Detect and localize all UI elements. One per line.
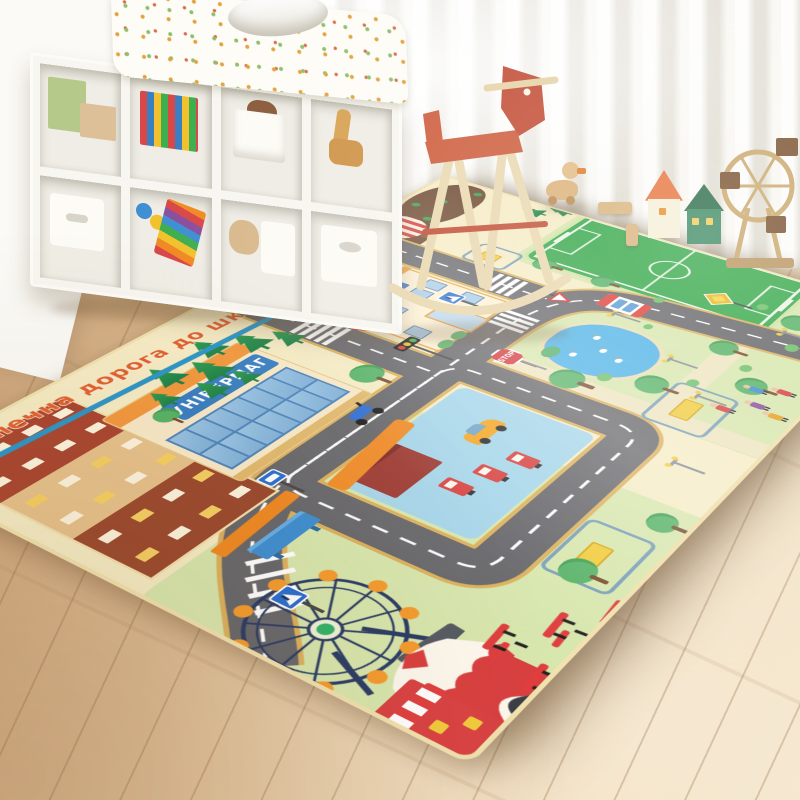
apartment-window: [84, 422, 107, 434]
wooden-giraffe-body: [329, 137, 363, 167]
xylophone: [154, 198, 207, 267]
apartment-window: [59, 511, 84, 525]
apartment-window: [24, 494, 49, 508]
apartment-window: [92, 490, 116, 504]
cubby: [221, 199, 302, 312]
apartment-window: [135, 547, 160, 562]
cubby: [311, 210, 392, 323]
picture-books: [140, 91, 198, 153]
wooden-block: [598, 202, 632, 214]
apartment-window: [53, 439, 76, 451]
toy-house-orange-roof: [645, 170, 683, 238]
cubby: [311, 99, 392, 212]
apartment-window: [167, 526, 191, 540]
storage-bin-white: [261, 220, 295, 276]
apartment-window: [228, 485, 251, 498]
beige-box: [80, 103, 116, 142]
cubby: [221, 87, 302, 200]
storage-bin-white: [321, 224, 377, 287]
cubby: [40, 175, 121, 288]
apartment-window: [199, 505, 223, 519]
apartment-window: [154, 453, 177, 466]
storage-box-white: [233, 109, 285, 164]
apartment-window: [124, 471, 147, 484]
apartment-window: [21, 457, 45, 470]
teddy-bear: [229, 218, 259, 256]
apartment-window: [120, 438, 143, 450]
rocking-horse: [385, 56, 575, 348]
wooden-ferris-wheel-toy: [718, 128, 800, 270]
cubby: [130, 75, 211, 188]
cubby: [130, 187, 211, 300]
apartment-window: [162, 488, 186, 501]
apartment-window: [89, 456, 112, 469]
apartment-window: [98, 529, 123, 544]
apartment-window: [57, 474, 81, 487]
playroom-scene: УНІВЕРМАГ: [0, 0, 800, 800]
cubby: [40, 63, 121, 176]
apartment-window: [192, 469, 215, 482]
wooden-figure: [626, 224, 638, 246]
apartment-window: [131, 508, 155, 522]
apartment-window: [0, 476, 12, 489]
